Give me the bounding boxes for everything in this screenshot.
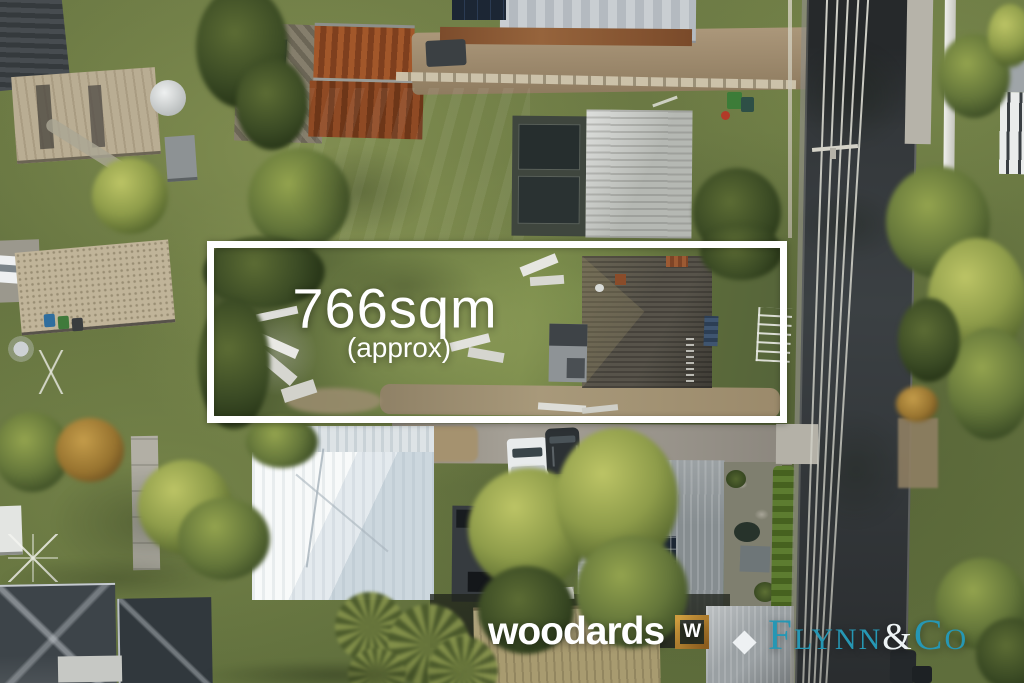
- red-item: [721, 111, 730, 120]
- tree: [178, 498, 270, 580]
- green-bin: [727, 92, 742, 109]
- flynn-rest: LYNN: [794, 625, 882, 655]
- tree: [236, 58, 308, 150]
- dark-hip-roof-house: [117, 597, 213, 683]
- wheelie-bin-green: [58, 316, 70, 330]
- outdoor-table: [425, 39, 466, 67]
- solar-panel-block: [518, 124, 580, 171]
- dark-bin: [741, 97, 754, 112]
- ute-windshield: [512, 447, 542, 458]
- roof-ridge-line: [306, 448, 325, 567]
- tv-antenna: [652, 96, 677, 108]
- flynn-initial: F: [768, 614, 794, 657]
- tree: [988, 4, 1024, 68]
- tan-speckled-roof: [15, 239, 176, 335]
- flynn-co-logo: FLYNN&CO: [768, 614, 968, 657]
- clothesline: [24, 350, 78, 394]
- suv-windshield: [549, 435, 575, 443]
- neighbour-house-solar-wing: [511, 116, 586, 237]
- woodards-monogram-icon: W: [675, 615, 709, 649]
- solar-panel-block: [518, 176, 580, 225]
- aerial-photo: 766sqm (approx) woodards W FLYNN&CO: [0, 0, 1024, 683]
- bottom-edge-shadow: [200, 660, 470, 683]
- small-grey-shed: [164, 135, 197, 182]
- roadside-dirt: [898, 418, 938, 488]
- timber-deck: [440, 27, 692, 46]
- woodards-wordmark: woodards: [488, 612, 664, 651]
- wheelie-bin-dark: [72, 318, 84, 332]
- power-pole: [830, 148, 836, 159]
- land-area-qualifier: (approx): [347, 332, 451, 364]
- roof-patch: [88, 85, 105, 148]
- land-area-label: 766sqm: [292, 276, 497, 341]
- water-tank: [150, 80, 186, 116]
- tree-shadow-on-road: [798, 189, 899, 261]
- co-initial: C: [914, 614, 945, 657]
- tree-shadow: [290, 146, 430, 236]
- side-fence: [788, 0, 792, 238]
- footpath: [905, 0, 934, 144]
- parked-car: [912, 666, 932, 683]
- wheelie-bin-blue: [44, 314, 56, 328]
- solar-panels: [452, 0, 506, 20]
- light-wall: [58, 655, 122, 682]
- shrub: [726, 470, 746, 488]
- tree: [92, 158, 168, 234]
- tree: [246, 416, 318, 468]
- ampersand: &: [882, 618, 914, 656]
- tree: [898, 298, 960, 382]
- garden-shed: [740, 545, 771, 572]
- skylight-diamond: [732, 630, 756, 654]
- autumn-shrub: [896, 386, 938, 422]
- roof-patch: [36, 84, 54, 149]
- garden-pond: [734, 522, 760, 542]
- neighbour-house-shingle-roof: [585, 110, 692, 239]
- white-roof-house: [252, 452, 434, 600]
- autumn-tree: [56, 418, 124, 482]
- woodards-logo: woodards W: [488, 612, 709, 651]
- co-rest: O: [945, 625, 969, 655]
